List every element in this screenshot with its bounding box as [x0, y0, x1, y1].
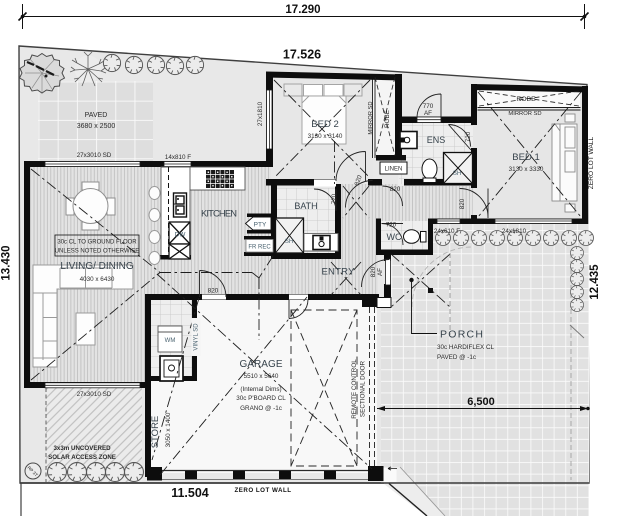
svg-text:27x3010 SD: 27x3010 SD [77, 152, 112, 159]
svg-text:SH: SH [453, 171, 461, 177]
svg-text:AF: AF [377, 268, 384, 276]
svg-text:GRANO @ -1c: GRANO @ -1c [240, 405, 282, 412]
svg-text:3x3m UNCOVERED: 3x3m UNCOVERED [53, 445, 111, 452]
svg-text:PORCH: PORCH [440, 329, 483, 341]
svg-text:11.504: 11.504 [171, 486, 209, 500]
svg-text:ROBE: ROBE [384, 110, 391, 128]
svg-text:720: 720 [331, 193, 338, 204]
svg-text:WC: WC [387, 232, 402, 242]
svg-text:KITCHEN: KITCHEN [201, 208, 237, 219]
svg-text:13.430: 13.430 [1, 245, 13, 280]
svg-text:STORE: STORE [150, 416, 161, 449]
svg-text:720: 720 [465, 131, 472, 142]
svg-text:BED 1: BED 1 [512, 152, 539, 163]
svg-text:30c HARDIFLEX CL: 30c HARDIFLEX CL [437, 344, 495, 351]
svg-text:BATH: BATH [294, 201, 317, 211]
svg-text:PAVED: PAVED [85, 112, 108, 119]
svg-text:DW: DW [175, 232, 187, 239]
svg-text:27x3010 SD: 27x3010 SD [77, 391, 112, 398]
svg-text:REMOTE CONTROL: REMOTE CONTROL [351, 359, 358, 419]
svg-text:MIRROR SD: MIRROR SD [368, 101, 374, 134]
svg-text:LINEN: LINEN [385, 167, 403, 173]
svg-text:VINYL SD: VINYL SD [194, 323, 200, 351]
svg-text:3130 x 3330: 3130 x 3330 [509, 166, 544, 173]
svg-text:820: 820 [370, 266, 377, 277]
svg-text:17.526: 17.526 [283, 48, 321, 62]
svg-text:720: 720 [386, 222, 397, 229]
svg-text:17.290: 17.290 [285, 4, 320, 16]
svg-text:MIRROR SD: MIRROR SD [508, 111, 541, 117]
svg-text:820: 820 [390, 186, 401, 193]
svg-text:30c CL TO GROUND FLOOR: 30c CL TO GROUND FLOOR [57, 240, 137, 246]
svg-text:6,500: 6,500 [467, 396, 495, 408]
svg-text:SH: SH [285, 239, 293, 245]
svg-text:UNLESS NOTED OTHERWISE: UNLESS NOTED OTHERWISE [55, 249, 140, 255]
svg-text:GARAGE: GARAGE [240, 359, 283, 370]
svg-text:5510 x 5640: 5510 x 5640 [244, 373, 279, 380]
svg-text:LIVING/ DINING: LIVING/ DINING [60, 261, 134, 272]
svg-text:30c P'BOARD CL: 30c P'BOARD CL [236, 395, 286, 402]
svg-text:PTY: PTY [254, 222, 267, 229]
svg-text:12.435: 12.435 [589, 264, 601, 300]
svg-text:24x610 F: 24x610 F [434, 228, 460, 235]
svg-text:24x1810: 24x1810 [502, 228, 527, 235]
svg-text:ENS: ENS [427, 135, 446, 145]
svg-text:3130 x 3140: 3130 x 3140 [308, 133, 343, 140]
svg-text:820: 820 [459, 198, 466, 209]
svg-text:SOLAR ACCESS ZONE: SOLAR ACCESS ZONE [48, 454, 116, 461]
svg-text:SECTIONAL DOOR: SECTIONAL DOOR [360, 361, 367, 418]
svg-text:(Internal Dims): (Internal Dims) [240, 386, 281, 393]
svg-text:ROBE: ROBE [516, 96, 536, 103]
svg-text:14x810 F: 14x810 F [165, 154, 191, 161]
svg-text:ENTRY: ENTRY [322, 267, 356, 278]
svg-text:820: 820 [208, 288, 219, 295]
svg-text:27x1810: 27x1810 [257, 101, 264, 126]
svg-text:AF: AF [424, 110, 432, 117]
svg-text:770: 770 [423, 103, 434, 110]
svg-text:BED 2: BED 2 [311, 119, 338, 130]
svg-text:3680 x 2500: 3680 x 2500 [77, 123, 116, 130]
svg-text:4030 x 6430: 4030 x 6430 [80, 276, 115, 283]
svg-text:ZERO LOT WALL: ZERO LOT WALL [588, 136, 595, 189]
svg-text:3050 x 1400: 3050 x 1400 [165, 412, 172, 447]
svg-text:FR REC: FR REC [248, 245, 271, 251]
svg-text:ZERO LOT WALL: ZERO LOT WALL [234, 487, 291, 494]
svg-text:PAVED @ -1c: PAVED @ -1c [437, 354, 476, 361]
svg-text:WM: WM [165, 338, 176, 344]
